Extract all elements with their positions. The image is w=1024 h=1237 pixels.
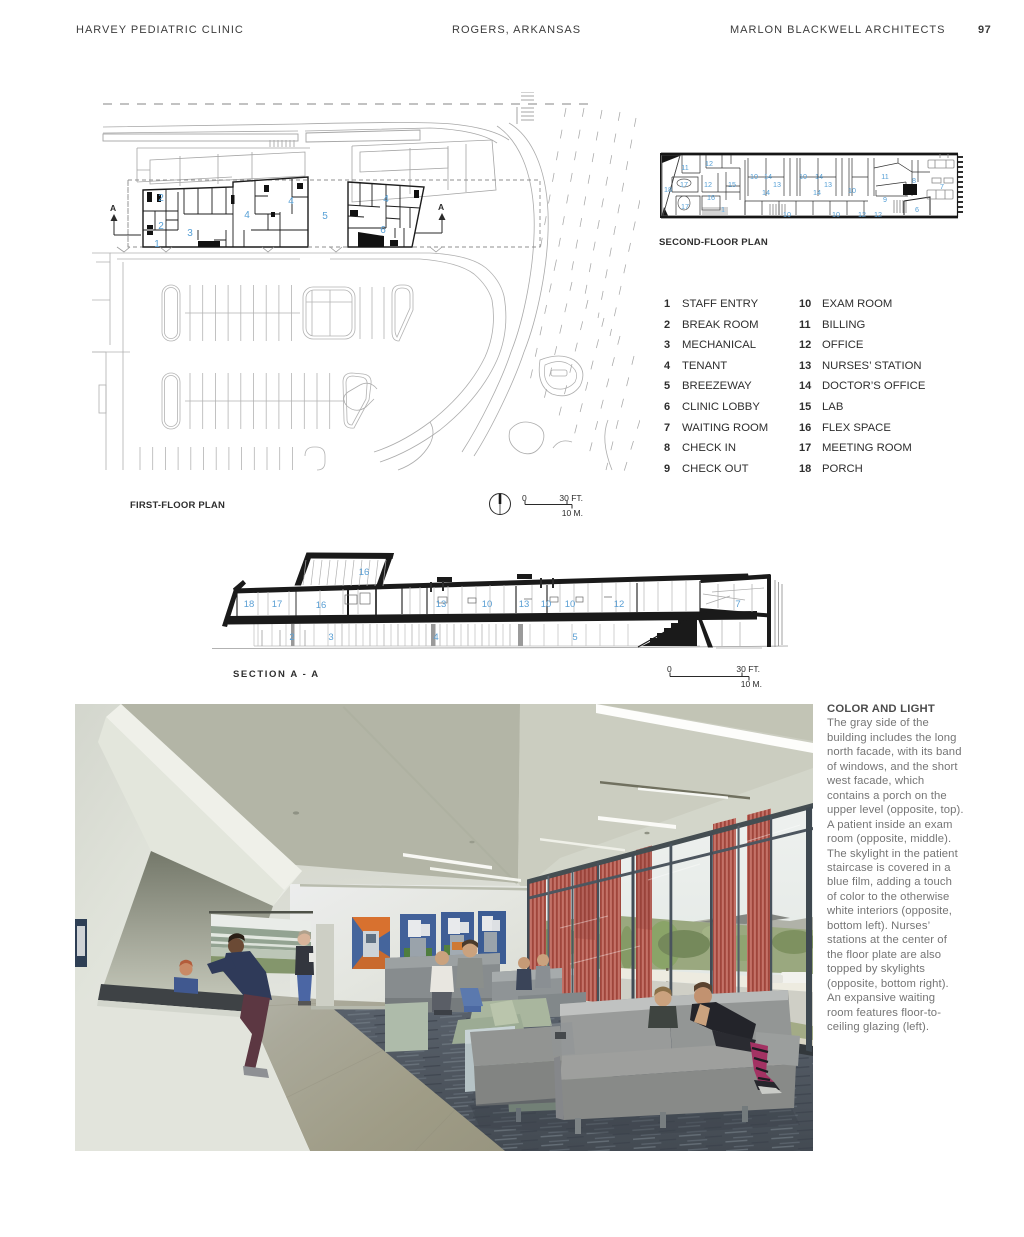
svg-text:14: 14 xyxy=(762,188,770,197)
svg-text:12: 12 xyxy=(704,180,712,189)
svg-text:4: 4 xyxy=(433,632,438,643)
svg-text:16: 16 xyxy=(359,567,370,578)
svg-text:15: 15 xyxy=(728,180,736,189)
svg-text:A: A xyxy=(110,203,116,213)
svg-text:8: 8 xyxy=(912,176,916,185)
svg-text:5: 5 xyxy=(322,211,328,222)
svg-text:17: 17 xyxy=(272,599,283,610)
svg-text:30 FT.: 30 FT. xyxy=(736,664,760,674)
svg-text:12: 12 xyxy=(705,159,713,168)
svg-text:7: 7 xyxy=(735,599,740,610)
svg-text:17: 17 xyxy=(680,180,688,189)
svg-text:3: 3 xyxy=(187,228,193,239)
svg-text:10: 10 xyxy=(783,210,791,219)
svg-text:10: 10 xyxy=(832,210,840,219)
svg-text:4: 4 xyxy=(383,194,389,205)
svg-text:10: 10 xyxy=(482,599,493,610)
svg-text:10 M.: 10 M. xyxy=(741,679,762,689)
svg-text:A: A xyxy=(438,202,444,212)
svg-text:16: 16 xyxy=(707,193,715,202)
svg-text:13: 13 xyxy=(773,180,781,189)
svg-text:10: 10 xyxy=(750,172,758,181)
svg-text:10: 10 xyxy=(799,172,807,181)
svg-text:1: 1 xyxy=(154,239,160,250)
svg-text:13: 13 xyxy=(824,180,832,189)
svg-text:14: 14 xyxy=(815,172,823,181)
svg-text:1: 1 xyxy=(721,205,725,214)
svg-text:4: 4 xyxy=(244,210,250,221)
svg-text:10: 10 xyxy=(848,186,856,195)
svg-text:10: 10 xyxy=(541,599,552,610)
svg-text:2: 2 xyxy=(289,632,294,643)
svg-text:30 FT.: 30 FT. xyxy=(559,493,583,503)
svg-text:2: 2 xyxy=(158,221,164,232)
svg-text:18: 18 xyxy=(244,599,255,610)
svg-text:10 M.: 10 M. xyxy=(562,508,583,518)
svg-text:11: 11 xyxy=(881,172,888,181)
svg-text:5: 5 xyxy=(572,632,577,643)
svg-text:12: 12 xyxy=(858,210,866,219)
svg-text:6: 6 xyxy=(915,205,919,214)
svg-text:7: 7 xyxy=(940,182,944,191)
svg-text:11: 11 xyxy=(681,163,688,172)
svg-text:18: 18 xyxy=(664,185,672,194)
svg-text:2: 2 xyxy=(158,193,164,204)
svg-text:12: 12 xyxy=(614,599,625,610)
svg-text:14: 14 xyxy=(764,172,772,181)
svg-text:6: 6 xyxy=(380,225,386,236)
svg-text:14: 14 xyxy=(813,188,821,197)
svg-text:13: 13 xyxy=(519,599,530,610)
svg-text:3: 3 xyxy=(328,632,333,643)
svg-text:13: 13 xyxy=(436,599,447,610)
svg-text:12: 12 xyxy=(874,210,882,219)
svg-text:10: 10 xyxy=(565,599,576,610)
svg-text:4: 4 xyxy=(288,196,294,207)
svg-text:9: 9 xyxy=(883,195,887,204)
svg-text:17: 17 xyxy=(681,202,689,211)
svg-text:16: 16 xyxy=(316,600,327,611)
